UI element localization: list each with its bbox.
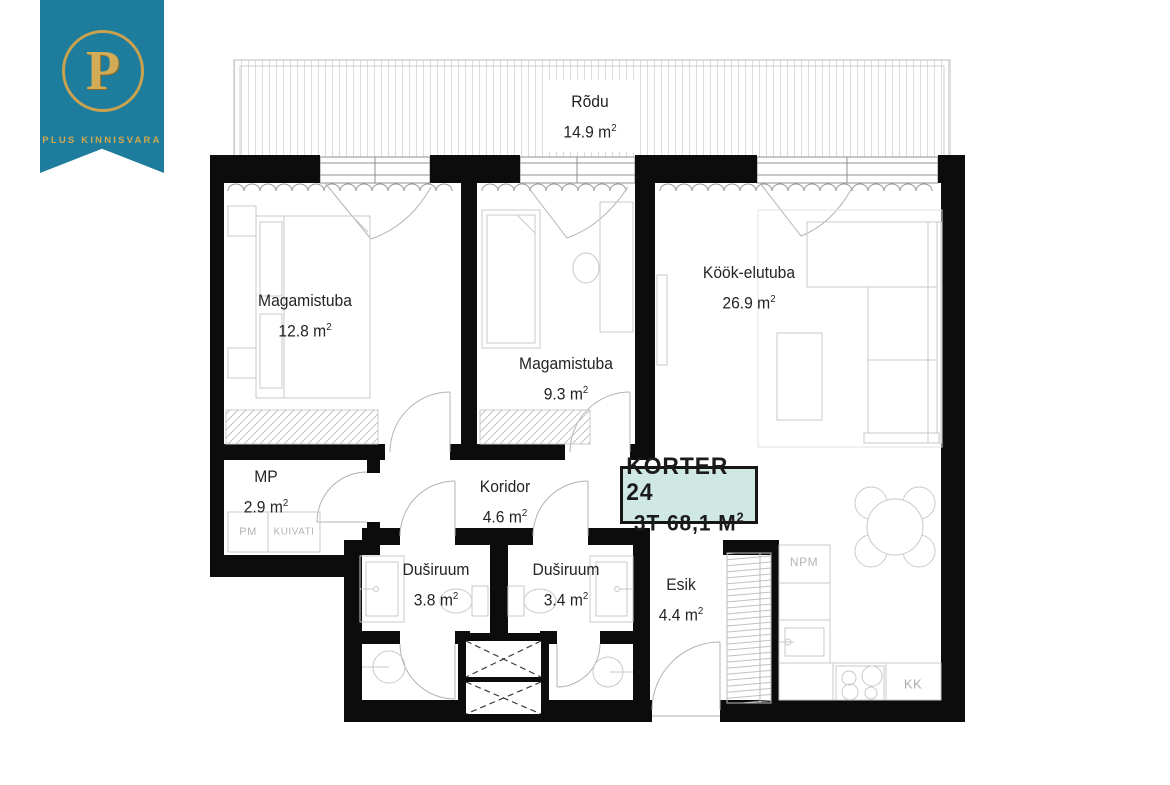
room-label-dusiruum2: Duširuum 3.4 m2: [530, 557, 603, 614]
floor-plan-page: P PLUS KINNISVARA Rõdu 14.9 m2 Magamistu…: [0, 0, 1170, 785]
sofa-chaise: [807, 222, 937, 287]
logo-circle: P: [62, 30, 144, 112]
door-shower1: [400, 481, 455, 536]
room-label-esik: Esik 4.4 m2: [657, 572, 705, 629]
room-label-kook-elutuba: Köök-elutuba 26.9 m2: [699, 260, 799, 317]
door-mp: [317, 472, 367, 522]
chair: [573, 253, 599, 283]
logo-company-name: PLUS KINNISVARA: [40, 135, 164, 146]
badge-apartment-size: 3T 68,1 M2: [634, 506, 745, 535]
room-label-dusiruum1: Duširuum 3.8 m2: [400, 557, 473, 614]
window-living: [757, 157, 938, 183]
room-label-mp: MP 2.9 m2: [242, 464, 290, 521]
windows: [320, 157, 938, 183]
single-bed: [482, 210, 540, 348]
door-wc1: [400, 644, 455, 699]
door-entrance: [652, 642, 720, 716]
wardrobe-hatch: [480, 410, 590, 444]
sofa-back: [928, 222, 941, 443]
desk: [600, 202, 633, 332]
label-washing-machine: PM: [239, 526, 257, 538]
room-label-rodu: Rõdu 14.9 m2: [551, 89, 629, 146]
wardrobe-hatch: [226, 410, 378, 444]
badge-apartment-number: KORTER 24: [626, 454, 751, 506]
door-balcony-bedroom1: [325, 183, 431, 239]
apartment-badge: KORTER 24 3T 68,1 M2: [620, 466, 758, 524]
door-bedroom1: [390, 392, 450, 452]
label-fridge: KK: [904, 677, 922, 692]
tv-bench: [657, 275, 667, 365]
door-wc2: [557, 644, 600, 687]
curtains: [228, 184, 932, 191]
room-label-magamistuba1: Magamistuba 12.8 m2: [254, 288, 356, 345]
logo-letter: P: [86, 43, 120, 99]
toilet-1-tank: [472, 586, 488, 616]
dining-table: [867, 499, 923, 555]
room-label-koridor: Koridor 4.6 m2: [478, 474, 533, 531]
furniture-bedroom2: [480, 202, 633, 444]
door-shower2: [533, 481, 588, 536]
window-bedroom1: [320, 157, 430, 183]
rug: [758, 210, 942, 447]
dining-set: [855, 487, 935, 567]
logo-banner: P PLUS KINNISVARA: [40, 0, 164, 173]
label-dryer: KUIVATI: [274, 527, 315, 538]
room-label-magamistuba2: Magamistuba 9.3 m2: [515, 351, 617, 408]
label-npm: NPM: [790, 555, 818, 569]
window-bedroom2: [520, 157, 635, 183]
hall-wardrobe: [727, 553, 771, 703]
coffee-table: [777, 333, 822, 420]
toilet-2-tank: [508, 586, 524, 616]
